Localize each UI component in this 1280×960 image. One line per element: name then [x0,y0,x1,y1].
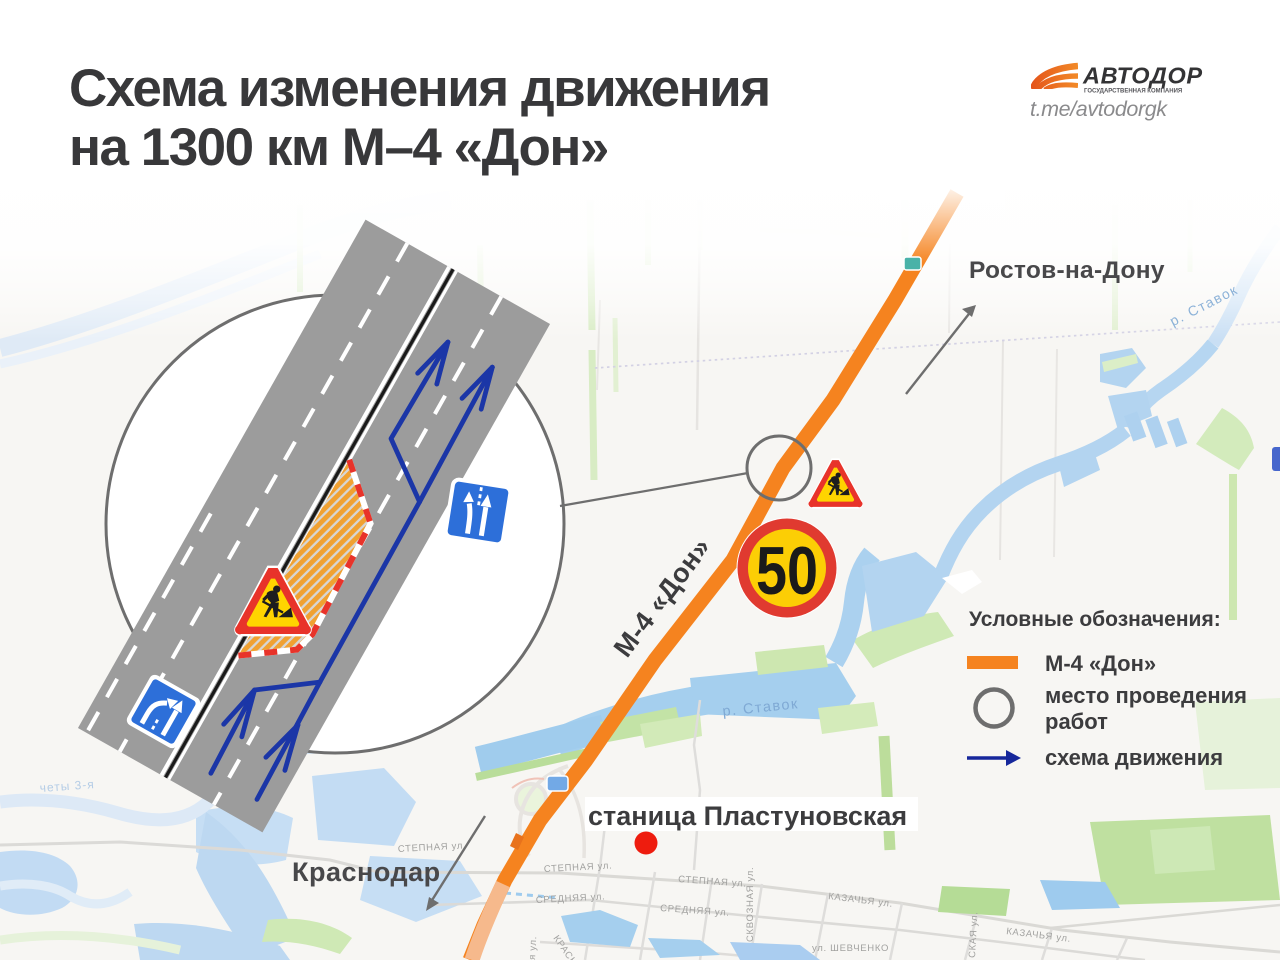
svg-text:ГОСУДАРСТВЕННАЯ КОМПАНИЯ: ГОСУДАРСТВЕННАЯ КОМПАНИЯ [1084,89,1182,95]
svg-text:СКВОЗНАЯ ул.: СКВОЗНАЯ ул. [745,867,756,942]
svg-text:ул. ШЕВЧЕНКО: ул. ШЕВЧЕНКО [812,943,889,954]
svg-text:место проведения: место проведения [1045,683,1247,708]
svg-text:на 1300 км М–4 «Дон»: на 1300 км М–4 «Дон» [69,118,608,177]
svg-text:t.me/avtodorgk: t.me/avtodorgk [1030,97,1168,121]
svg-text:схема движения: схема движения [1045,745,1223,770]
svg-text:я ул.: я ул. [527,936,539,960]
svg-text:50: 50 [756,533,818,609]
svg-text:Ростов-на-Дону: Ростов-на-Дону [969,257,1165,284]
svg-text:станица Пластуновская: станица Пластуновская [588,801,907,831]
svg-text:Условные обозначения:: Условные обозначения: [969,608,1221,631]
svg-text:Схема изменения движения: Схема изменения движения [69,59,770,118]
svg-text:АВТОДОР: АВТОДОР [1082,63,1203,89]
svg-text:Краснодар: Краснодар [292,857,441,887]
svg-text:работ: работ [1045,709,1108,734]
svg-text:М-4 «Дон»: М-4 «Дон» [1045,651,1156,676]
